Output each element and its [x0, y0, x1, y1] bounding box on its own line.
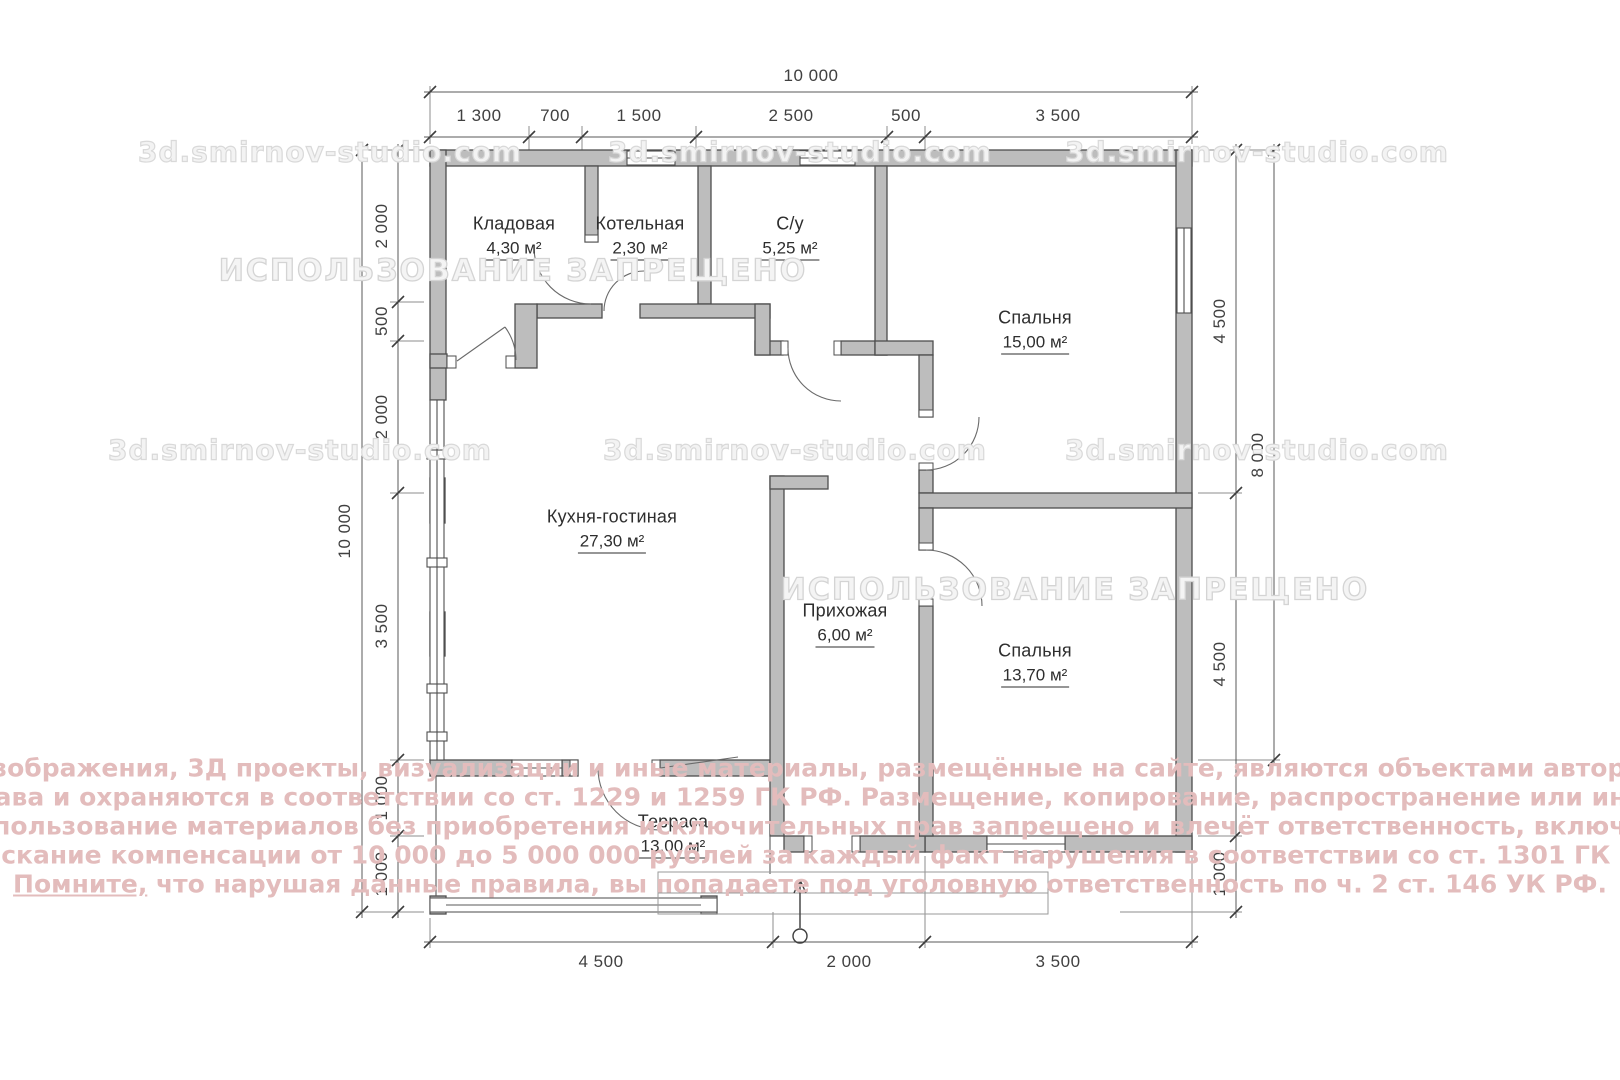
- watermark-site: 3d.smirnov-studio.com: [608, 136, 992, 169]
- dim-top-seg-3: 1 500: [616, 106, 661, 126]
- copyright-line-3: использование материалов без приобретени…: [0, 812, 1620, 841]
- watermark-site: 3d.smirnov-studio.com: [1065, 434, 1449, 467]
- copyright-line-5-rest: что нарушая данные правила, вы попадаете…: [147, 870, 1607, 899]
- dim-top-seg-2: 700: [540, 106, 570, 126]
- dim-left-seg-2: 500: [372, 306, 392, 336]
- watermark-site: 3d.smirnov-studio.com: [108, 434, 492, 467]
- dim-bottom-seg-1: 4 500: [578, 952, 623, 972]
- room-label-bedroom-1: Спальня 15,00 м²: [998, 308, 1072, 355]
- watermark-forbidden: ИСПОЛЬЗОВАНИЕ ЗАПРЕЩЕНО: [219, 254, 808, 289]
- dim-right-seg-1: 4 500: [1210, 298, 1230, 343]
- room-label-bedroom-2: Спальня 13,70 м²: [998, 641, 1072, 688]
- watermark-forbidden: ИСПОЛЬЗОВАНИЕ ЗАПРЕЩЕНО: [781, 573, 1370, 608]
- floor-plan-page: 3d.smirnov-studio.com 3d.smirnov-studio.…: [0, 0, 1620, 1080]
- dim-top-seg-1: 1 300: [456, 106, 501, 126]
- copyright-line-1: Все изображения, 3Д проекты, визуализаци…: [0, 754, 1620, 783]
- watermark-site: 3d.smirnov-studio.com: [603, 434, 987, 467]
- dim-right-seg-2: 4 500: [1210, 641, 1230, 686]
- dim-top-seg-5: 500: [891, 106, 921, 126]
- copyright-line-2: права и охраняются в соответствии со ст.…: [0, 783, 1620, 812]
- dim-top-total: 10 000: [784, 66, 839, 86]
- dim-left-seg-4: 3 500: [372, 603, 392, 648]
- room-label-kitchen-living: Кухня-гостиная 27,30 м²: [547, 507, 677, 554]
- dim-top-seg-4: 2 500: [768, 106, 813, 126]
- copyright-remember-word: Помните,: [13, 870, 147, 899]
- dim-left-seg-1: 2 000: [372, 203, 392, 248]
- dim-bottom-seg-3: 3 500: [1035, 952, 1080, 972]
- watermark-site: 3d.smirnov-studio.com: [138, 136, 522, 169]
- room-label-hallway: Прихожая 6,00 м²: [802, 601, 887, 648]
- dim-bottom-seg-2: 2 000: [826, 952, 871, 972]
- copyright-line-4: взыскание компенсации от 10 000 до 5 000…: [0, 841, 1620, 870]
- dim-top-seg-6: 3 500: [1035, 106, 1080, 126]
- dim-left-total: 10 000: [335, 504, 355, 559]
- watermark-site: 3d.smirnov-studio.com: [1065, 136, 1449, 169]
- copyright-line-5: Помните, что нарушая данные правила, вы …: [13, 870, 1607, 899]
